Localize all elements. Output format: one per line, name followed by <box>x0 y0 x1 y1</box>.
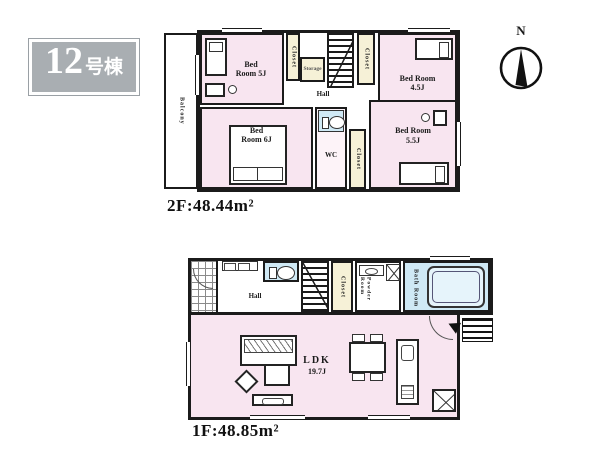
toilet-icon <box>318 110 344 132</box>
closet-label: Closet <box>363 48 370 70</box>
bathtub-icon <box>427 266 485 308</box>
closet-2f-mid: Closet <box>357 33 375 85</box>
chair-icon <box>228 85 237 94</box>
stairs-2f <box>327 33 354 88</box>
shoe-cabinet-icon <box>222 261 258 271</box>
hall-1f-label: Hall <box>235 292 275 300</box>
side-table-icon <box>234 369 258 393</box>
floor2-area-label: 2F:48.44m² <box>167 196 254 216</box>
dining-table-icon <box>349 342 386 373</box>
wc-2f: WC <box>315 107 347 189</box>
storage-label: Storage <box>303 66 323 72</box>
balcony-label: Balcony <box>178 97 185 125</box>
sink-counter-icon <box>359 265 384 276</box>
bath-room-text: Bath Room <box>412 269 419 307</box>
door-arc <box>193 269 213 289</box>
window <box>430 256 470 261</box>
window <box>186 342 191 386</box>
bed-icon <box>415 38 453 60</box>
stairs-diagonal <box>303 263 327 310</box>
closet-label: Closet <box>339 276 346 298</box>
window <box>456 122 461 166</box>
washing-machine-icon <box>386 264 400 281</box>
ldk-size: 19.7J <box>293 367 341 376</box>
powder-room: Powder Room <box>355 261 401 312</box>
desk-icon <box>433 110 447 126</box>
kitchen-counter-icon <box>396 339 419 405</box>
ldk-label: LDK 19.7J <box>293 355 341 376</box>
fridge-icon <box>432 389 456 412</box>
floor2-plan: Bed Room 5J Closet Storage Closet Bed Ro… <box>197 30 460 192</box>
storage-2f: Storage <box>300 57 325 82</box>
ldk-name: LDK <box>293 355 341 367</box>
entrance-tiles <box>191 261 218 312</box>
bath-room-label: Bath Room <box>409 268 421 308</box>
bedroom-5j-label: Bed Room 5J <box>234 60 268 78</box>
powder-room-label: Powder Room <box>359 277 371 312</box>
floor1-service-row: Hall Closet Powder Room <box>188 258 493 315</box>
balcony: Balcony <box>164 33 198 189</box>
closet-1f: Closet <box>331 261 353 312</box>
building-suffix: 号棟 <box>85 57 123 79</box>
wc-1f <box>263 261 299 282</box>
window <box>250 415 305 420</box>
bedroom-5j: Bed Room 5J <box>200 33 284 105</box>
hall-2f-label: Hall <box>303 90 343 98</box>
compass-icon <box>499 42 543 94</box>
dining-chair-icon <box>352 373 365 381</box>
stairs-1f <box>301 261 329 312</box>
closet-label: Closet <box>290 46 297 68</box>
bedroom-5-5j: Bed Room 5.5J <box>369 100 457 189</box>
bed-icon <box>205 38 227 76</box>
porch-steps <box>462 318 493 342</box>
dining-chair-icon <box>352 334 365 342</box>
compass-north-label: N <box>497 24 545 39</box>
low-table-icon <box>264 364 290 386</box>
floorplan-page: 12 号棟 N Balcony Bed Room 5J Closet Stora… <box>0 0 600 451</box>
closet-label: Closet <box>354 148 361 170</box>
dining-chair-icon <box>370 334 383 342</box>
window <box>195 55 200 95</box>
window <box>222 28 262 33</box>
bedroom-4-5j-label: Bed Room 4.5J <box>400 74 436 92</box>
desk-icon <box>205 83 225 97</box>
bedroom-6j-label: Bed Room 6J <box>240 126 274 144</box>
window <box>368 415 410 420</box>
stairs-diagonal <box>329 35 352 86</box>
wc-2f-label: WC <box>317 151 345 159</box>
window <box>408 28 450 33</box>
sofa-icon <box>240 335 297 366</box>
floor1-area-label: 1F:48.85m² <box>192 421 279 441</box>
tv-board-icon <box>252 394 293 406</box>
building-number: 12 <box>45 42 83 80</box>
floor1-ldk-block: LDK 19.7J <box>188 312 460 420</box>
closet-2f-west: Closet <box>286 33 300 81</box>
dining-chair-icon <box>370 373 383 381</box>
bath-room: Bath Room <box>403 261 490 312</box>
chair-icon <box>421 113 430 122</box>
bed-icon <box>399 162 449 185</box>
closet-2f-south: Closet <box>349 129 366 189</box>
powder-room-text: Powder Room <box>359 277 372 312</box>
bedroom-6j: Bed Room 6J <box>200 107 313 189</box>
building-badge: 12 号棟 <box>28 38 140 96</box>
bedroom-5-5j-label: Bed Room 5.5J <box>395 126 431 144</box>
